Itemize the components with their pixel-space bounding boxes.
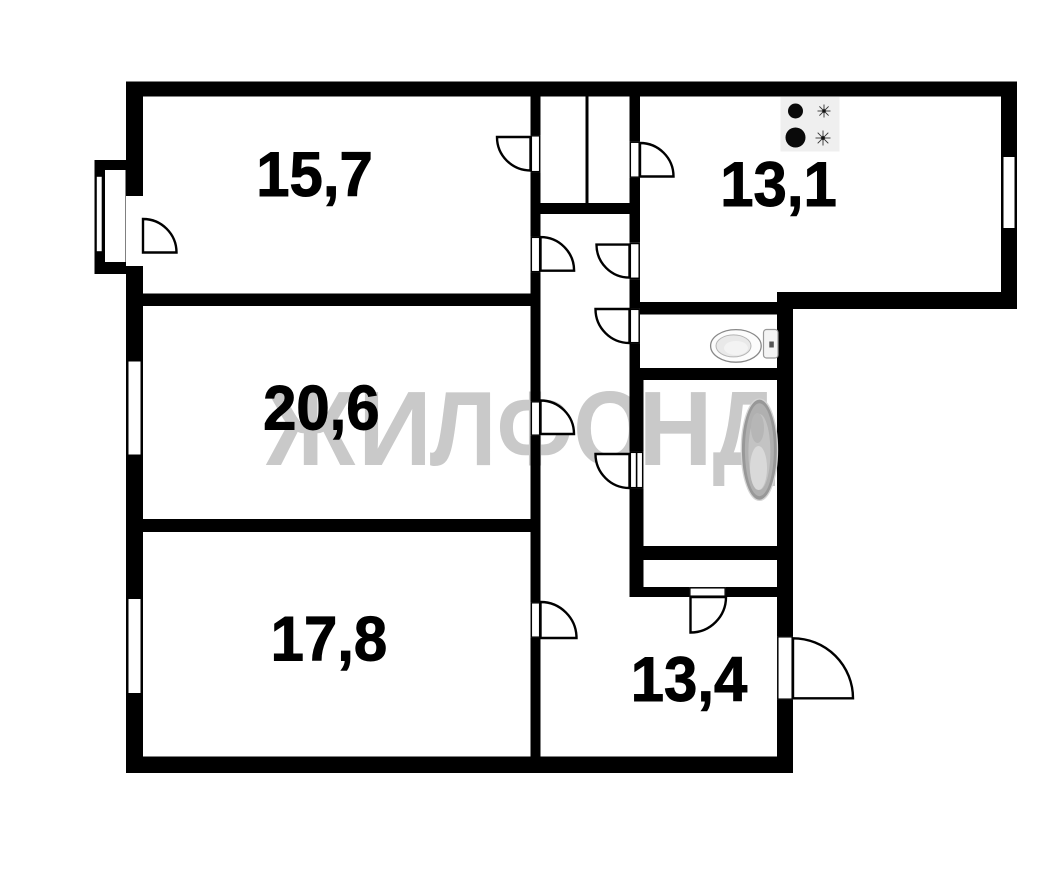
svg-text:13,4: 13,4 [631, 645, 747, 716]
svg-text:13,1: 13,1 [720, 150, 836, 221]
svg-text:15,7: 15,7 [256, 140, 372, 211]
svg-text:Л: Л [430, 370, 497, 488]
svg-text:17,8: 17,8 [271, 604, 387, 675]
svg-text:Н: Н [638, 371, 712, 489]
svg-text:20,6: 20,6 [263, 373, 379, 444]
